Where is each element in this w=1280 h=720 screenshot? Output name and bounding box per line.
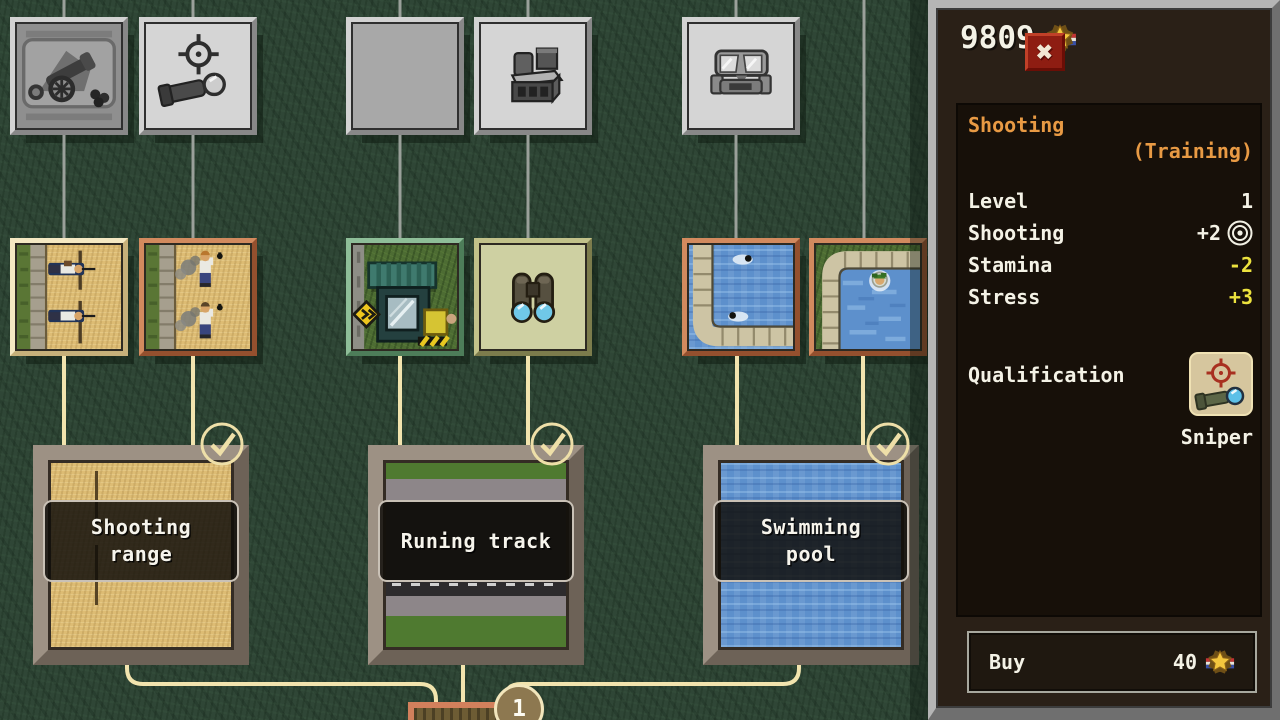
binoculars-icon [481, 245, 585, 349]
guard-post-scene [353, 245, 457, 349]
stat-row: Stress +3 [968, 281, 1253, 313]
building-tile-running-track[interactable]: Runing track [368, 445, 584, 665]
grenade-throwing-scene [146, 245, 250, 349]
upgrade-tile-grenade-throwing[interactable] [139, 238, 257, 356]
buy-button[interactable]: Buy 40 [967, 631, 1257, 693]
stat-label: Stress [968, 285, 1040, 309]
target-icon [1227, 220, 1253, 246]
detail-card: Shooting (Training) Level 1 Shooting +2 [956, 103, 1262, 617]
building-tile-shooting-range[interactable]: Shooting range [33, 445, 249, 665]
prone-shooting-scene [17, 245, 121, 349]
upgrade-tile-prone-shooting[interactable] [10, 238, 128, 356]
checkmark-icon [199, 421, 245, 467]
qualification-label: Qualification [968, 362, 1125, 388]
checkmark-icon [865, 421, 911, 467]
building-name: Shooting [968, 103, 1253, 138]
upgrade-tile-cannon[interactable] [10, 17, 128, 135]
sniper-qualification-icon [1189, 352, 1253, 416]
building-label: Runing track [378, 500, 574, 582]
stat-value: +3 [1229, 285, 1253, 309]
tech-tree-canvas: Shooting range Runing track Swimming poo… [0, 0, 1280, 720]
empty-slot [353, 24, 457, 128]
stat-label: Shooting [968, 221, 1064, 245]
upgrade-tile-binoculars[interactable] [474, 238, 592, 356]
buy-label: Buy [989, 650, 1025, 674]
qualification-row: Qualification [968, 362, 1253, 416]
upgrade-tile-pool-float[interactable] [809, 238, 927, 356]
stat-value: 1 [1241, 189, 1253, 213]
medal-star-icon [1205, 647, 1235, 677]
building-detail-panel: 9809 Shooting (Training) [928, 0, 1280, 720]
building-category: (Training) [968, 138, 1253, 164]
stat-value: -2 [1229, 253, 1253, 277]
checkmark-icon [529, 421, 575, 467]
stats-list: Level 1 Shooting +2 [968, 185, 1253, 313]
stat-row: Shooting +2 [968, 217, 1253, 249]
upgrade-tile-equipment[interactable] [474, 17, 592, 135]
pool-swimmers-scene [689, 245, 793, 349]
qualification-name: Sniper [968, 425, 1253, 449]
building-label: Shooting range [43, 500, 239, 582]
building-label: Swimming pool [713, 500, 909, 582]
upgrade-tile-gas-mask[interactable] [682, 17, 800, 135]
upgrade-tile-sniper-scope[interactable] [139, 17, 257, 135]
stat-label: Level [968, 189, 1028, 213]
stat-value: +2 [1197, 221, 1221, 245]
close-button[interactable] [1025, 33, 1065, 71]
x-icon [1032, 40, 1058, 64]
stat-label: Stamina [968, 253, 1052, 277]
upgrade-tile-guard-post[interactable] [346, 238, 464, 356]
building-tile-swimming-pool[interactable]: Swimming pool [703, 445, 919, 665]
stat-row: Stamina -2 [968, 249, 1253, 281]
panel-header: 9809 [960, 20, 1077, 56]
gas-mask-icon [689, 24, 793, 128]
cannon-icon [17, 24, 121, 128]
sniper-scope-icon [146, 24, 250, 128]
buy-price: 40 [1173, 650, 1197, 674]
field-equipment-icon [481, 24, 585, 128]
currency-balance: 9809 [960, 20, 1035, 56]
stat-row: Level 1 [968, 185, 1253, 217]
pool-float-scene [816, 245, 920, 349]
upgrade-tile-empty[interactable] [346, 17, 464, 135]
upgrade-tile-pool-swimmers[interactable] [682, 238, 800, 356]
